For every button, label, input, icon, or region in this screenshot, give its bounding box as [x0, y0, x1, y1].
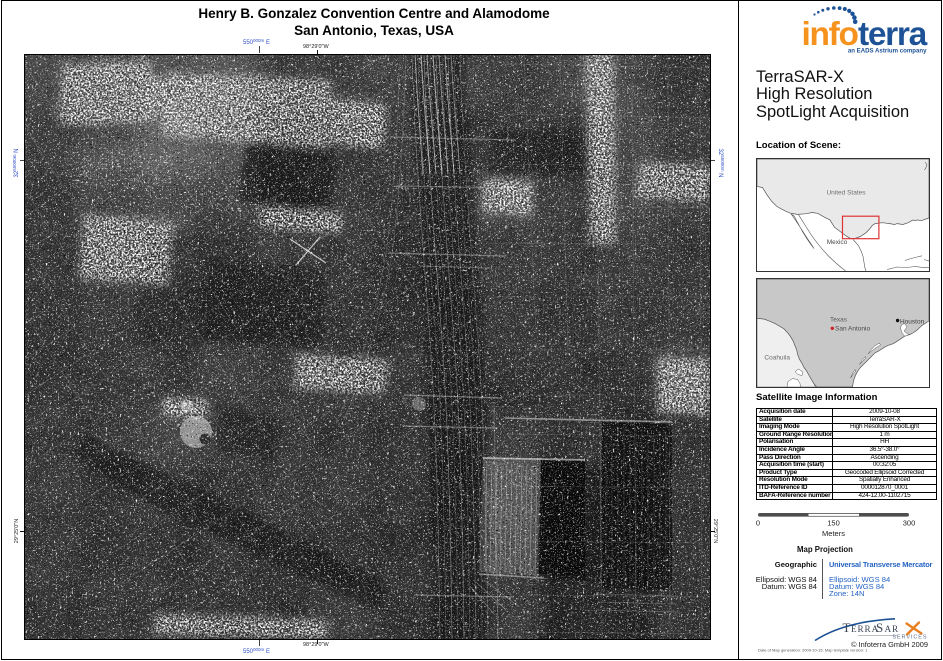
- svg-text:Texas: Texas: [830, 316, 848, 323]
- svg-text:AR: AR: [885, 624, 900, 634]
- svg-text:Coahuila: Coahuila: [764, 354, 790, 361]
- svg-text:S: S: [876, 620, 883, 635]
- svg-text:T: T: [843, 620, 851, 635]
- svg-text:Mexico: Mexico: [827, 239, 848, 246]
- svg-text:San Antonio: San Antonio: [835, 326, 870, 333]
- svg-text:United States: United States: [826, 190, 866, 197]
- svg-text:Meters: Meters: [822, 529, 845, 538]
- svg-text:ERRA: ERRA: [851, 624, 879, 634]
- svg-text:300: 300: [903, 519, 916, 528]
- svg-text:0: 0: [756, 519, 760, 528]
- svg-text:Houston: Houston: [900, 318, 925, 325]
- svg-text:150: 150: [827, 519, 840, 528]
- svg-text:an EADS Astrium company: an EADS Astrium company: [848, 48, 927, 55]
